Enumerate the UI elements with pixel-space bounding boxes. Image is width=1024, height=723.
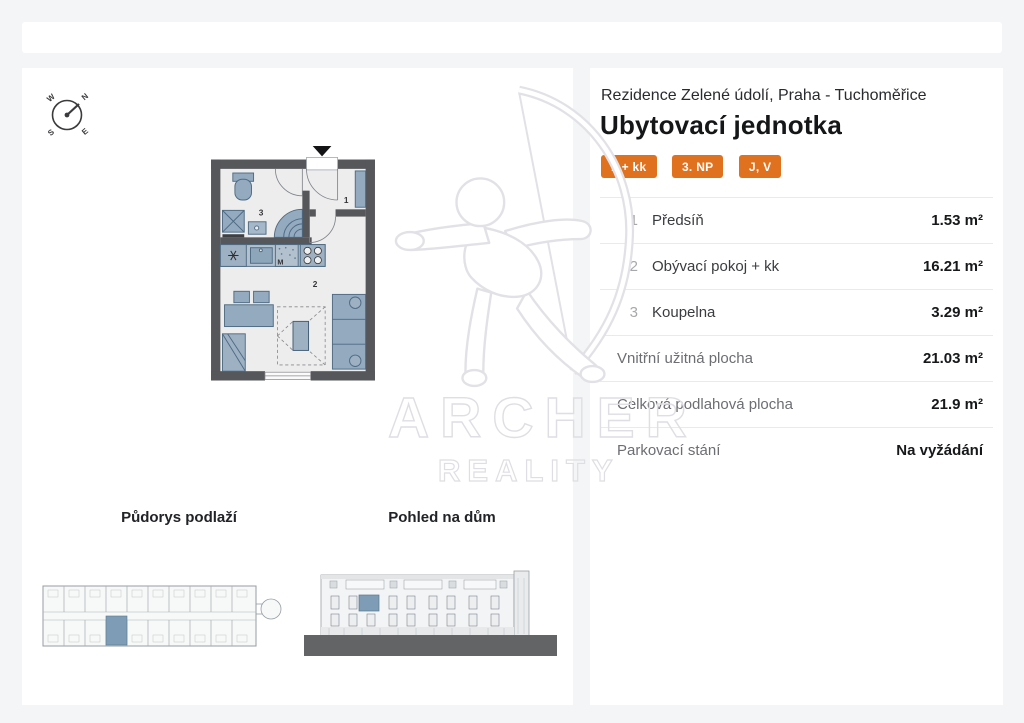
total-label: Celková podlahová plocha bbox=[617, 396, 931, 413]
stair-tower bbox=[261, 599, 281, 619]
table-row-total: Parkovací stání Na vyžádání bbox=[600, 427, 993, 473]
table-row: 3 Koupelna 3.29 m² bbox=[600, 289, 993, 335]
window bbox=[265, 372, 311, 379]
project-name: Rezidence Zelené údolí, Praha - Tuchoměř… bbox=[601, 86, 993, 105]
chair bbox=[254, 291, 270, 302]
table-row-total: Celková podlahová plocha 21.9 m² bbox=[600, 381, 993, 427]
total-label: Vnitřní užitná plocha bbox=[617, 350, 923, 367]
hall-wardrobe bbox=[355, 171, 365, 207]
compass-w-label: W bbox=[45, 92, 57, 104]
compass-n-label: N bbox=[80, 91, 90, 102]
room-number: 3 bbox=[617, 304, 638, 321]
table-row-total: Vnitřní užitná plocha 21.03 m² bbox=[600, 335, 993, 381]
total-value: Na vyžádání bbox=[896, 442, 983, 459]
area-table: 1 Předsíň 1.53 m² 2 Obývací pokoj + kk 1… bbox=[600, 197, 993, 473]
elevation-thumbnail-title: Pohled na dům bbox=[337, 509, 547, 526]
chair bbox=[234, 291, 250, 302]
total-label: Parkovací stání bbox=[617, 442, 896, 459]
room-number: 1 bbox=[617, 212, 638, 229]
room-number: 2 bbox=[617, 258, 638, 275]
tv bbox=[293, 321, 309, 350]
viewer-top-bar bbox=[22, 22, 1002, 53]
total-value: 21.9 m² bbox=[931, 396, 983, 413]
dining-table bbox=[225, 305, 274, 327]
highlighted-unit bbox=[106, 616, 127, 645]
kitchen-counter bbox=[220, 245, 325, 267]
floor-thumbnail-title: Půdorys podlaží bbox=[74, 509, 284, 526]
storey-plan-drawing bbox=[42, 580, 284, 651]
compass-e-label: E bbox=[80, 126, 90, 137]
room-name: Předsíň bbox=[652, 212, 931, 229]
unit-title: Ubytovací jednotka bbox=[600, 109, 993, 141]
orientation-badge: J, V bbox=[739, 155, 782, 178]
unit-info-card: Rezidence Zelené údolí, Praha - Tuchoměř… bbox=[590, 68, 1003, 705]
room-area: 16.21 m² bbox=[923, 258, 983, 275]
badge-row: 1 + kk 3. NP J, V bbox=[601, 155, 993, 178]
table-row: 1 Předsíň 1.53 m² bbox=[600, 197, 993, 243]
entrance-arrow-icon bbox=[313, 146, 332, 156]
compass-icon: N W S E bbox=[38, 84, 96, 142]
building-elevation-drawing bbox=[304, 568, 560, 662]
room-label-bathroom: 3 bbox=[259, 208, 264, 218]
floorplan-card: N W S E bbox=[22, 68, 573, 705]
toilet bbox=[235, 179, 252, 200]
highlighted-window bbox=[359, 595, 379, 611]
room-area: 1.53 m² bbox=[931, 212, 983, 229]
room-label-hallway: 1 bbox=[344, 195, 349, 205]
total-value: 21.03 m² bbox=[923, 350, 983, 367]
ground bbox=[304, 635, 557, 656]
layout-badge: 1 + kk bbox=[601, 155, 657, 178]
table-row: 2 Obývací pokoj + kk 16.21 m² bbox=[600, 243, 993, 289]
kitchen-m-label: M bbox=[277, 257, 283, 266]
hob bbox=[300, 245, 325, 267]
unit-floorplan-drawing: 1 2 3 M bbox=[211, 145, 375, 394]
compass-s-label: S bbox=[46, 127, 56, 138]
room-label-living: 2 bbox=[313, 279, 318, 289]
room-name: Koupelna bbox=[652, 304, 931, 321]
room-name: Obývací pokoj + kk bbox=[652, 258, 923, 275]
room-area: 3.29 m² bbox=[931, 304, 983, 321]
floor-badge: 3. NP bbox=[672, 155, 724, 178]
